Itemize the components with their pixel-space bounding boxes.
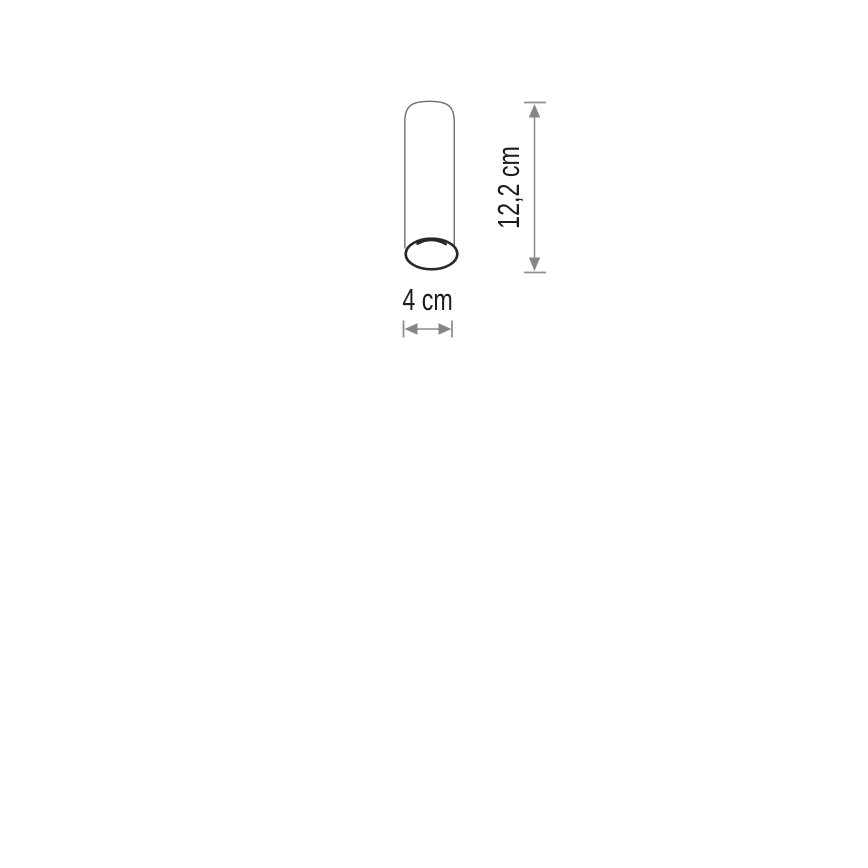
arrow-right-icon (439, 323, 452, 335)
cylinder-opening (406, 239, 458, 270)
width-dimension-label: 4 cm (402, 282, 452, 317)
height-dimension: 12,2 cm (491, 103, 546, 273)
width-dimension: 4 cm (402, 282, 452, 338)
page-canvas: 12,2 cm 4 cm (0, 0, 868, 868)
cylinder-top-edge (405, 101, 455, 122)
arrow-left-icon (405, 323, 418, 335)
arrow-down-icon (529, 258, 540, 272)
arrow-up-icon (529, 104, 540, 118)
height-dimension-label: 12,2 cm (491, 146, 526, 229)
cylinder-drawing (405, 101, 458, 269)
product-dimension-diagram: 12,2 cm 4 cm (0, 0, 868, 868)
